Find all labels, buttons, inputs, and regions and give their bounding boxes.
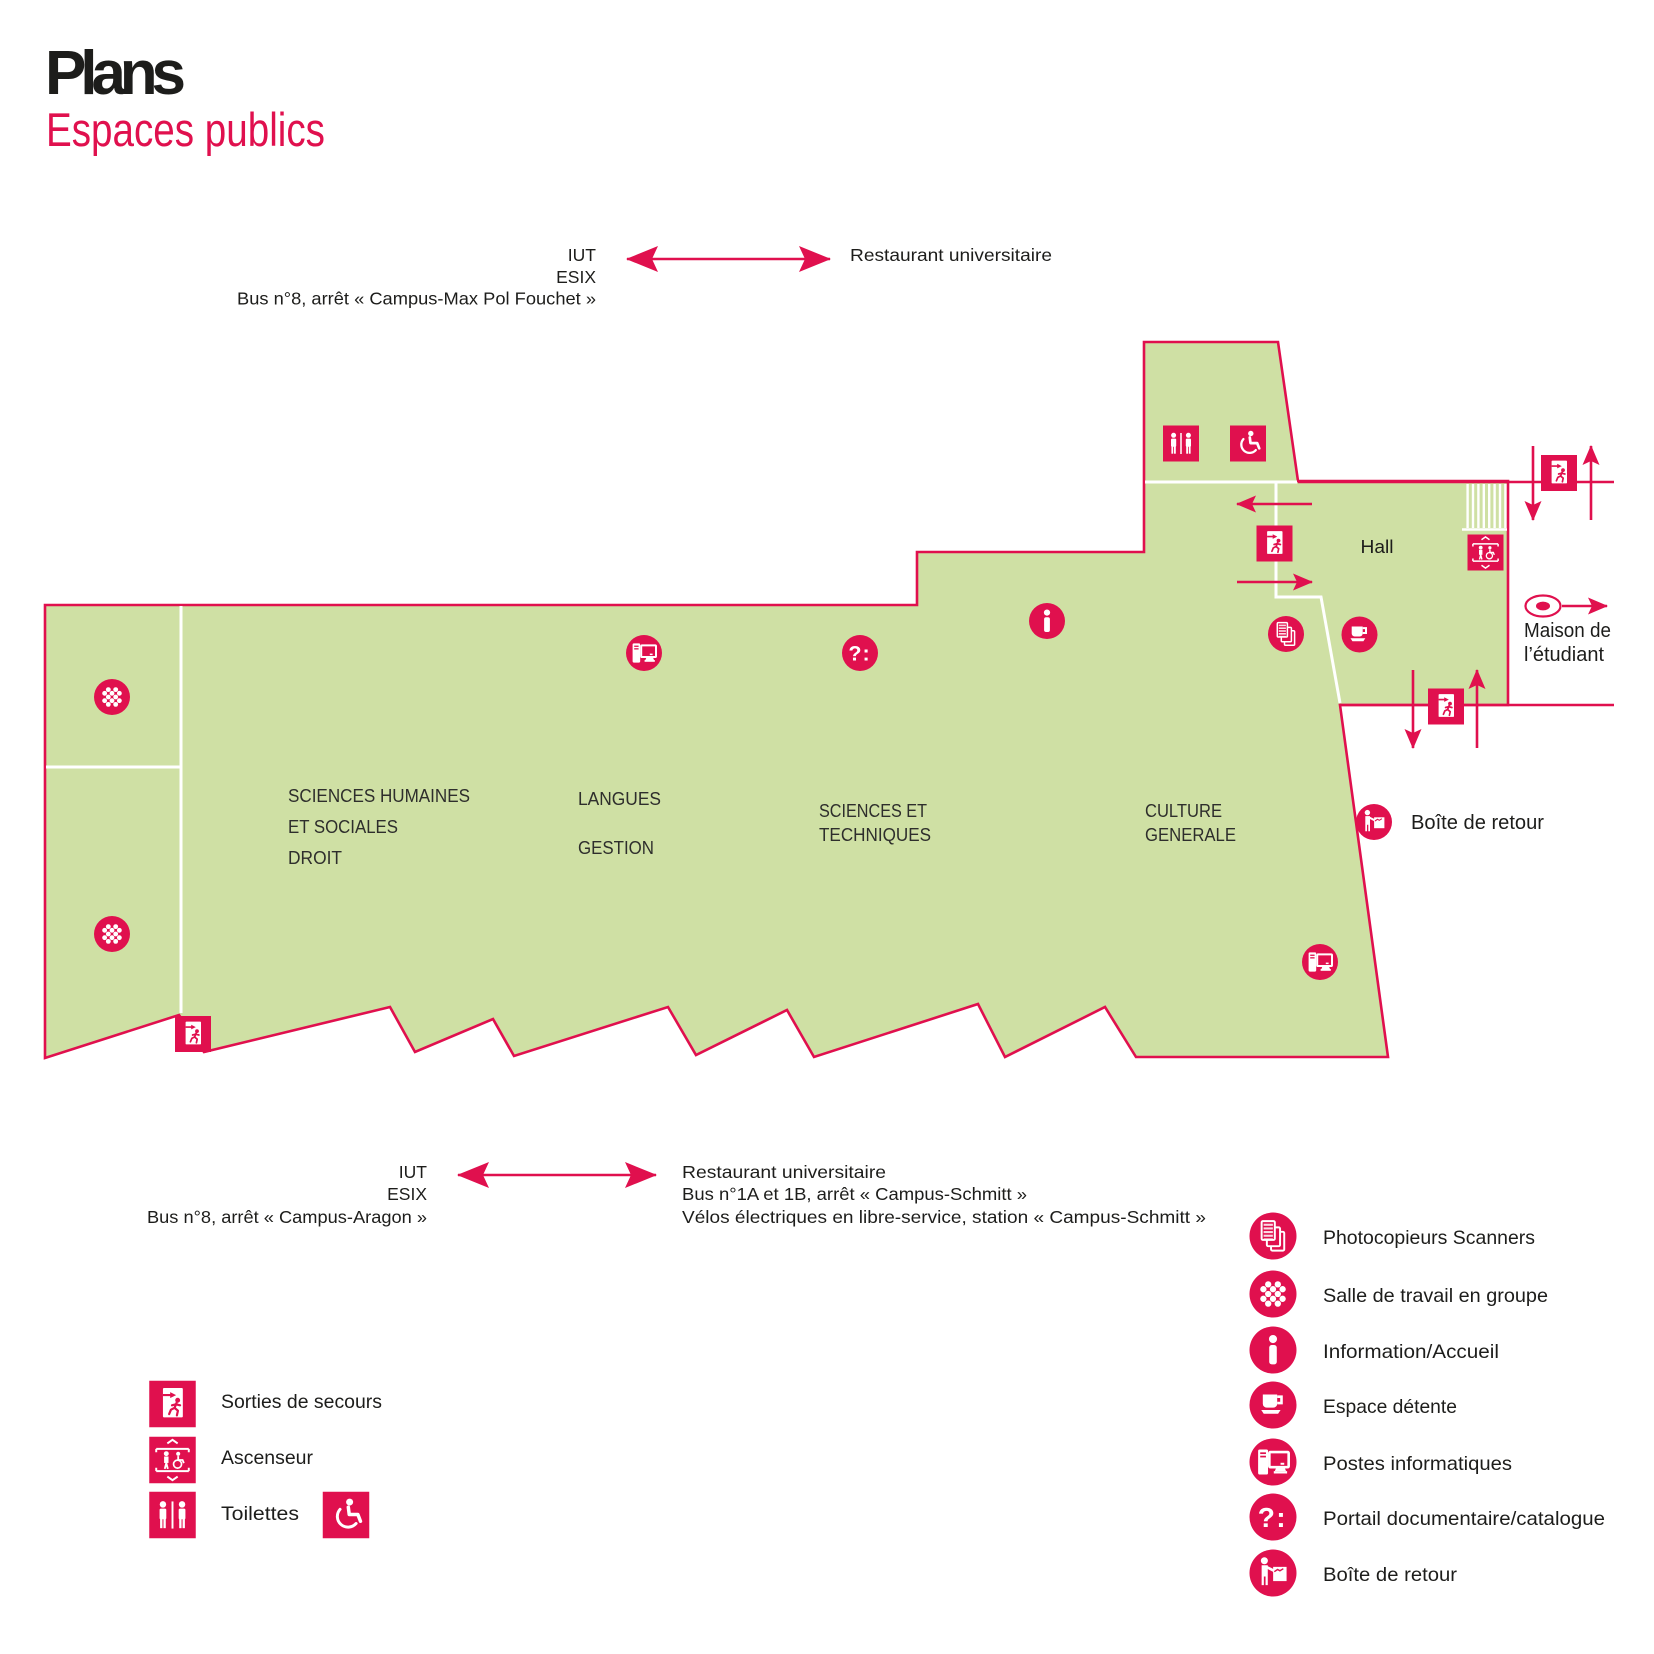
svg-text:Postes informatiques: Postes informatiques xyxy=(1323,1453,1512,1475)
svg-text:Restaurant universitaire: Restaurant universitaire xyxy=(850,245,1052,265)
svg-text:IUT: IUT xyxy=(568,245,597,265)
svg-text:IUT: IUT xyxy=(399,1162,428,1182)
svg-text:Ascenseur: Ascenseur xyxy=(221,1447,313,1469)
svg-text:Bus n°8, arrêt « Campus-Aragon: Bus n°8, arrêt « Campus-Aragon » xyxy=(147,1207,427,1227)
svg-text:Bus n°1A et 1B, arrêt « Campus: Bus n°1A et 1B, arrêt « Campus-Schmitt » xyxy=(682,1184,1027,1204)
svg-text:Maison de: Maison de xyxy=(1524,619,1611,642)
svg-text:Boîte de retour: Boîte de retour xyxy=(1323,1564,1458,1586)
svg-text:Information/Accueil: Information/Accueil xyxy=(1323,1341,1499,1363)
svg-text:SCIENCES HUMAINES: SCIENCES HUMAINES xyxy=(288,786,470,806)
svg-text:Portail documentaire/catalogue: Portail documentaire/catalogue xyxy=(1323,1508,1605,1530)
svg-text:ESIX: ESIX xyxy=(387,1184,427,1204)
svg-text:ET SOCIALES: ET SOCIALES xyxy=(288,817,398,837)
svg-text:CULTURE: CULTURE xyxy=(1145,801,1222,821)
svg-text:Espace détente: Espace détente xyxy=(1323,1396,1457,1418)
svg-text:Plans: Plans xyxy=(45,39,186,108)
svg-text:TECHNIQUES: TECHNIQUES xyxy=(819,825,931,845)
svg-text:Toilettes: Toilettes xyxy=(221,1503,299,1525)
svg-text:Salle de travail en groupe: Salle de travail en groupe xyxy=(1323,1285,1548,1307)
svg-text:Espaces publics: Espaces publics xyxy=(46,103,325,156)
svg-text:Hall: Hall xyxy=(1361,537,1394,557)
svg-text:Boîte de retour: Boîte de retour xyxy=(1411,812,1544,834)
svg-text:l’étudiant: l’étudiant xyxy=(1524,643,1604,666)
svg-text:SCIENCES ET: SCIENCES ET xyxy=(819,801,927,821)
svg-text:ESIX: ESIX xyxy=(556,267,596,287)
svg-text:Bus n°8, arrêt « Campus-Max Po: Bus n°8, arrêt « Campus-Max Pol Fouchet … xyxy=(237,289,596,309)
svg-text:GESTION: GESTION xyxy=(578,838,654,858)
svg-text:GENERALE: GENERALE xyxy=(1145,825,1236,845)
svg-text:Photocopieurs Scanners: Photocopieurs Scanners xyxy=(1323,1227,1535,1249)
svg-text:Restaurant universitaire: Restaurant universitaire xyxy=(682,1162,886,1182)
svg-text:DROIT: DROIT xyxy=(288,848,342,868)
svg-text:Vélos électriques en libre-ser: Vélos électriques en libre-service, stat… xyxy=(682,1207,1206,1227)
svg-text:LANGUES: LANGUES xyxy=(578,789,661,809)
svg-text:Sorties de secours: Sorties de secours xyxy=(221,1391,382,1413)
